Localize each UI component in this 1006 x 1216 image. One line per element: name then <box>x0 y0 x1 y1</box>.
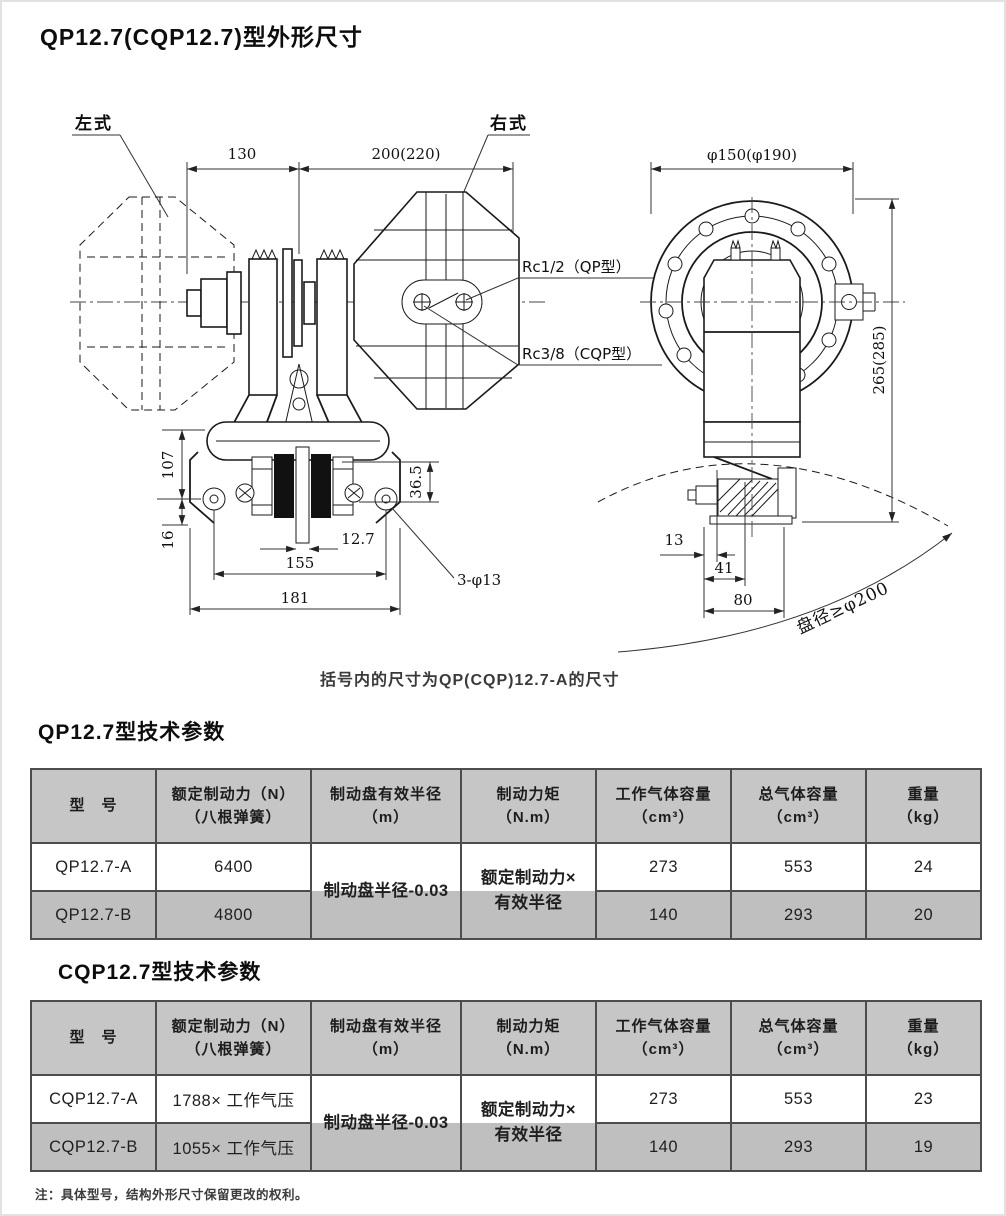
force-cell: 6400 <box>156 843 311 891</box>
page-title: QP12.7(CQP12.7)型外形尺寸 <box>40 18 363 52</box>
dim-265-285: 265(285) <box>870 326 888 395</box>
force-cell: 1788× 工作气压 <box>156 1075 311 1123</box>
table-row: CQP12.7-A 1788× 工作气压 制动盘半径-0.03 额定制动力×有效… <box>31 1075 981 1123</box>
table-header-row: 型 号 额定制动力（N）（八根弹簧） 制动盘有效半径（m） 制动力矩（N.m） … <box>31 769 981 843</box>
dim-107: 107 <box>159 451 177 480</box>
table1-title: QP12.7型技术参数 <box>38 716 225 746</box>
footnote: 注：具体型号，结构外形尺寸保留更改的权利。 <box>35 1184 308 1203</box>
col-model: 型 号 <box>31 1001 156 1075</box>
col-model: 型 号 <box>31 769 156 843</box>
table-header-row: 型 号 额定制动力（N）（八根弹簧） 制动盘有效半径（m） 制动力矩（N.m） … <box>31 1001 981 1075</box>
model-cell: CQP12.7-A <box>31 1075 156 1123</box>
dim-80: 80 <box>733 591 752 609</box>
qp-spec-table: 型 号 额定制动力（N）（八根弹簧） 制动盘有效半径（m） 制动力矩（N.m） … <box>30 768 982 940</box>
total-volume-cell: 293 <box>731 891 866 939</box>
dim-12-7: 12.7 <box>341 530 374 548</box>
work-volume-cell: 273 <box>596 1075 731 1123</box>
table-row: QP12.7-A 6400 制动盘半径-0.03 额定制动力×有效半径 273 … <box>31 843 981 891</box>
label-left-type: 左式 <box>75 113 113 133</box>
col-torque: 制动力矩（N.m） <box>461 769 596 843</box>
col-weight: 重量（kg） <box>866 769 981 843</box>
torque-merged-cell: 额定制动力×有效半径 <box>461 1075 596 1171</box>
total-volume-cell: 553 <box>731 843 866 891</box>
front-view: 130 200(220) 左式 右式 <box>70 113 662 615</box>
dim-200-220: 200(220) <box>372 145 441 163</box>
work-volume-cell: 140 <box>596 891 731 939</box>
force-cell: 1055× 工作气压 <box>156 1123 311 1171</box>
weight-cell: 20 <box>866 891 981 939</box>
right-variant-body <box>354 192 519 409</box>
port-label-qp: Rc1/2（QP型） <box>522 258 631 276</box>
work-volume-cell: 140 <box>596 1123 731 1171</box>
dim-13: 13 <box>664 531 683 549</box>
cqp-spec-table: 型 号 额定制动力（N）（八根弹簧） 制动盘有效半径（m） 制动力矩（N.m） … <box>30 1000 982 1172</box>
technical-drawing: 130 200(220) 左式 右式 <box>2 90 1006 668</box>
total-volume-cell: 553 <box>731 1075 866 1123</box>
torque-merged-cell: 额定制动力×有效半径 <box>461 843 596 939</box>
work-volume-cell: 273 <box>596 843 731 891</box>
dim-130: 130 <box>228 145 257 163</box>
dim-155: 155 <box>286 554 315 572</box>
force-cell: 4800 <box>156 891 311 939</box>
document-page: QP12.7(CQP12.7)型外形尺寸 130 200(220) 左式 右式 <box>0 0 1006 1216</box>
col-total-volume: 总气体容量（cm³） <box>731 1001 866 1075</box>
dim-36-5: 36.5 <box>407 465 425 498</box>
col-force: 额定制动力（N）（八根弹簧） <box>156 1001 311 1075</box>
brake-pad-right <box>311 454 331 518</box>
dim-flange-diameter: φ150(φ190) <box>707 146 797 164</box>
hole-note: 3-φ13 <box>457 571 501 589</box>
col-force: 额定制动力（N）（八根弹簧） <box>156 769 311 843</box>
model-cell: CQP12.7-B <box>31 1123 156 1171</box>
dim-16: 16 <box>159 530 177 549</box>
brake-pad-left <box>274 454 294 518</box>
model-cell: QP12.7-A <box>31 843 156 891</box>
label-right-type: 右式 <box>490 113 528 133</box>
dimension-drawing-svg: 130 200(220) 左式 右式 <box>2 90 1006 668</box>
dim-41: 41 <box>714 559 733 577</box>
model-cell: QP12.7-B <box>31 891 156 939</box>
side-view: φ150(φ190) 265(285) 13 41 80 盘径≥φ200 <box>598 146 952 652</box>
weight-cell: 19 <box>866 1123 981 1171</box>
col-total-volume: 总气体容量（cm³） <box>731 769 866 843</box>
radius-merged-cell: 制动盘半径-0.03 <box>311 1075 461 1171</box>
port-label-cqp: Rc3/8（CQP型） <box>522 345 641 363</box>
radius-merged-cell: 制动盘半径-0.03 <box>311 843 461 939</box>
table2-title: CQP12.7型技术参数 <box>58 956 261 986</box>
col-work-volume: 工作气体容量（cm³） <box>596 1001 731 1075</box>
col-work-volume: 工作气体容量（cm³） <box>596 769 731 843</box>
weight-cell: 24 <box>866 843 981 891</box>
brake-disc <box>296 447 309 543</box>
caliper-body <box>688 241 800 524</box>
col-radius: 制动盘有效半径（m） <box>311 1001 461 1075</box>
col-radius: 制动盘有效半径（m） <box>311 769 461 843</box>
total-volume-cell: 293 <box>731 1123 866 1171</box>
weight-cell: 23 <box>866 1075 981 1123</box>
drawing-caption: 括号内的尺寸为QP(CQP)12.7-A的尺寸 <box>320 666 619 690</box>
col-weight: 重量（kg） <box>866 1001 981 1075</box>
col-torque: 制动力矩（N.m） <box>461 1001 596 1075</box>
dim-181: 181 <box>281 589 310 607</box>
disc-diameter-note: 盘径≥φ200 <box>794 578 893 638</box>
